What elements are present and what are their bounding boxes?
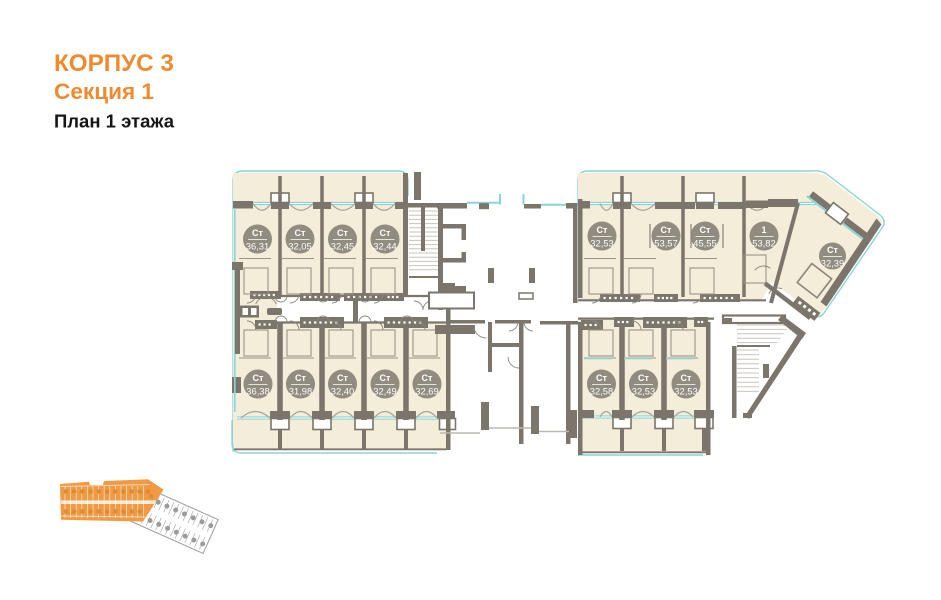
svg-text:32,49: 32,49 bbox=[373, 386, 396, 397]
svg-text:КОРПУС 3: КОРПУС 3 bbox=[54, 50, 174, 77]
svg-text:32,53: 32,53 bbox=[674, 386, 697, 397]
svg-text:32,45: 32,45 bbox=[331, 241, 354, 252]
svg-text:53,82: 53,82 bbox=[752, 238, 775, 249]
svg-text:Ст: Ст bbox=[337, 373, 348, 383]
svg-text:31,98: 31,98 bbox=[289, 386, 312, 397]
svg-text:Ст: Ст bbox=[700, 225, 711, 235]
svg-text:Ст: Ст bbox=[253, 373, 264, 383]
svg-text:Ст: Ст bbox=[295, 228, 306, 238]
svg-text:Ст: Ст bbox=[597, 225, 608, 235]
svg-text:Секция 1: Секция 1 bbox=[54, 79, 154, 104]
svg-text:36,31: 36,31 bbox=[246, 241, 269, 252]
svg-text:Ст: Ст bbox=[827, 245, 838, 255]
svg-text:53,57: 53,57 bbox=[654, 238, 677, 249]
svg-text:32,69: 32,69 bbox=[415, 386, 438, 397]
svg-text:Ст: Ст bbox=[661, 225, 672, 235]
svg-text:45,55: 45,55 bbox=[693, 238, 716, 249]
svg-text:Ст: Ст bbox=[681, 373, 692, 383]
svg-text:32,05: 32,05 bbox=[288, 241, 311, 252]
svg-text:32,53: 32,53 bbox=[590, 238, 613, 249]
svg-text:Ст: Ст bbox=[422, 373, 433, 383]
svg-text:Ст: Ст bbox=[638, 373, 649, 383]
svg-text:32,53: 32,53 bbox=[632, 386, 655, 397]
svg-text:План 1 этажа: План 1 этажа bbox=[54, 111, 175, 132]
svg-text:32,58: 32,58 bbox=[590, 386, 613, 397]
svg-text:32,40: 32,40 bbox=[331, 386, 354, 397]
svg-text:32,39: 32,39 bbox=[821, 258, 844, 269]
svg-text:Ст: Ст bbox=[252, 228, 263, 238]
svg-text:Ст: Ст bbox=[596, 373, 607, 383]
svg-text:1: 1 bbox=[761, 225, 766, 235]
svg-text:Ст: Ст bbox=[380, 373, 391, 383]
svg-text:36,38: 36,38 bbox=[246, 386, 269, 397]
svg-text:Ст: Ст bbox=[295, 373, 306, 383]
svg-text:32,44: 32,44 bbox=[373, 241, 396, 252]
svg-text:Ст: Ст bbox=[337, 228, 348, 238]
svg-text:Ст: Ст bbox=[380, 228, 391, 238]
